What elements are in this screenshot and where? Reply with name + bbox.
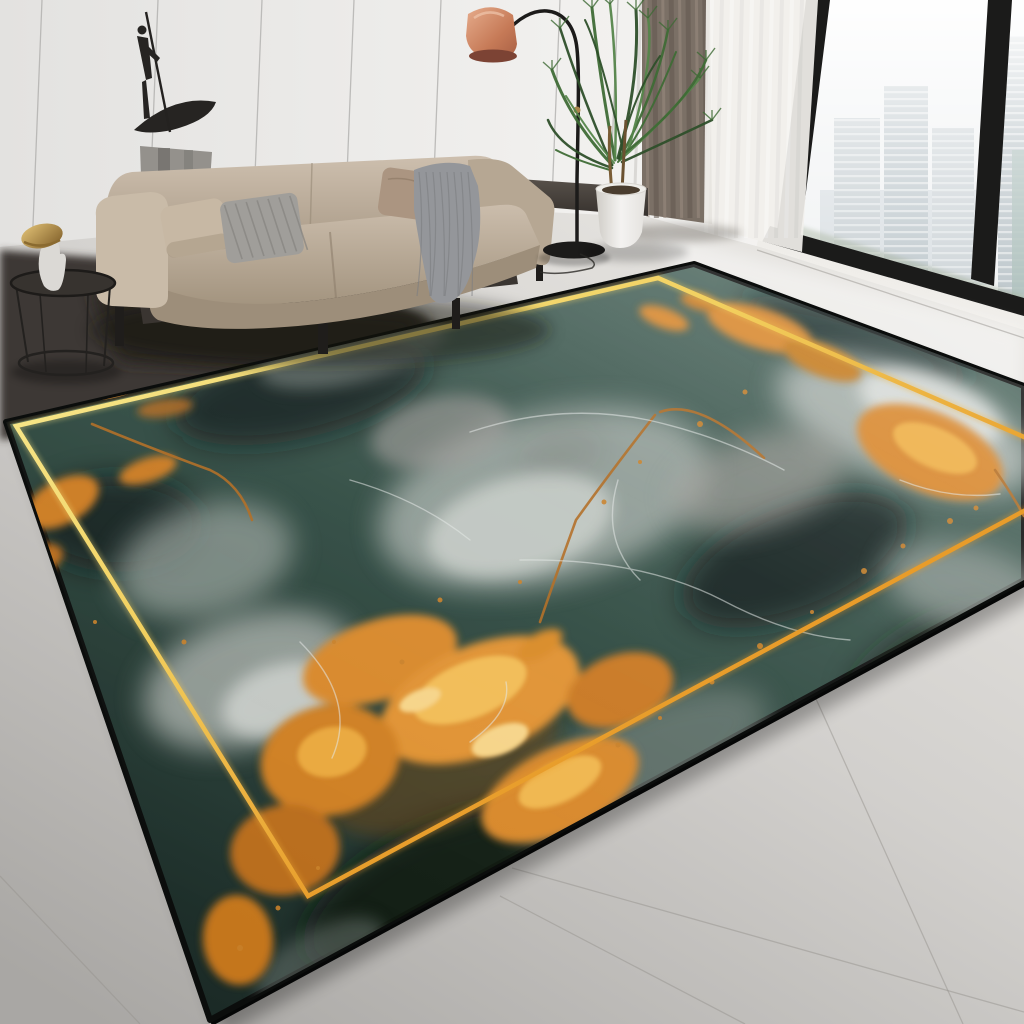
grey-striped-pillow: [219, 191, 308, 264]
scene-canvas: [0, 0, 1024, 1024]
beige-pillow: [159, 197, 231, 259]
curtain-fold: [696, 0, 698, 218]
taupe-curtain: [642, 0, 712, 224]
sofa-leg: [452, 298, 460, 329]
living-room-photo: [0, 0, 1024, 1024]
lamp-shade-opening: [469, 50, 517, 63]
pot-soil: [602, 186, 640, 195]
curtain-fold: [688, 0, 690, 218]
sheer-curtain: [704, 0, 818, 252]
beige-sofa: [90, 156, 554, 366]
sofa-leg: [115, 302, 124, 346]
sculpture-figure-head: [138, 26, 147, 35]
curtain-fold: [654, 0, 656, 218]
pot-shadow: [584, 242, 688, 262]
sofa-leg: [318, 320, 328, 354]
curtain-fold: [646, 0, 648, 218]
curtain-fold: [680, 0, 682, 218]
curtain-fold: [663, 0, 665, 218]
